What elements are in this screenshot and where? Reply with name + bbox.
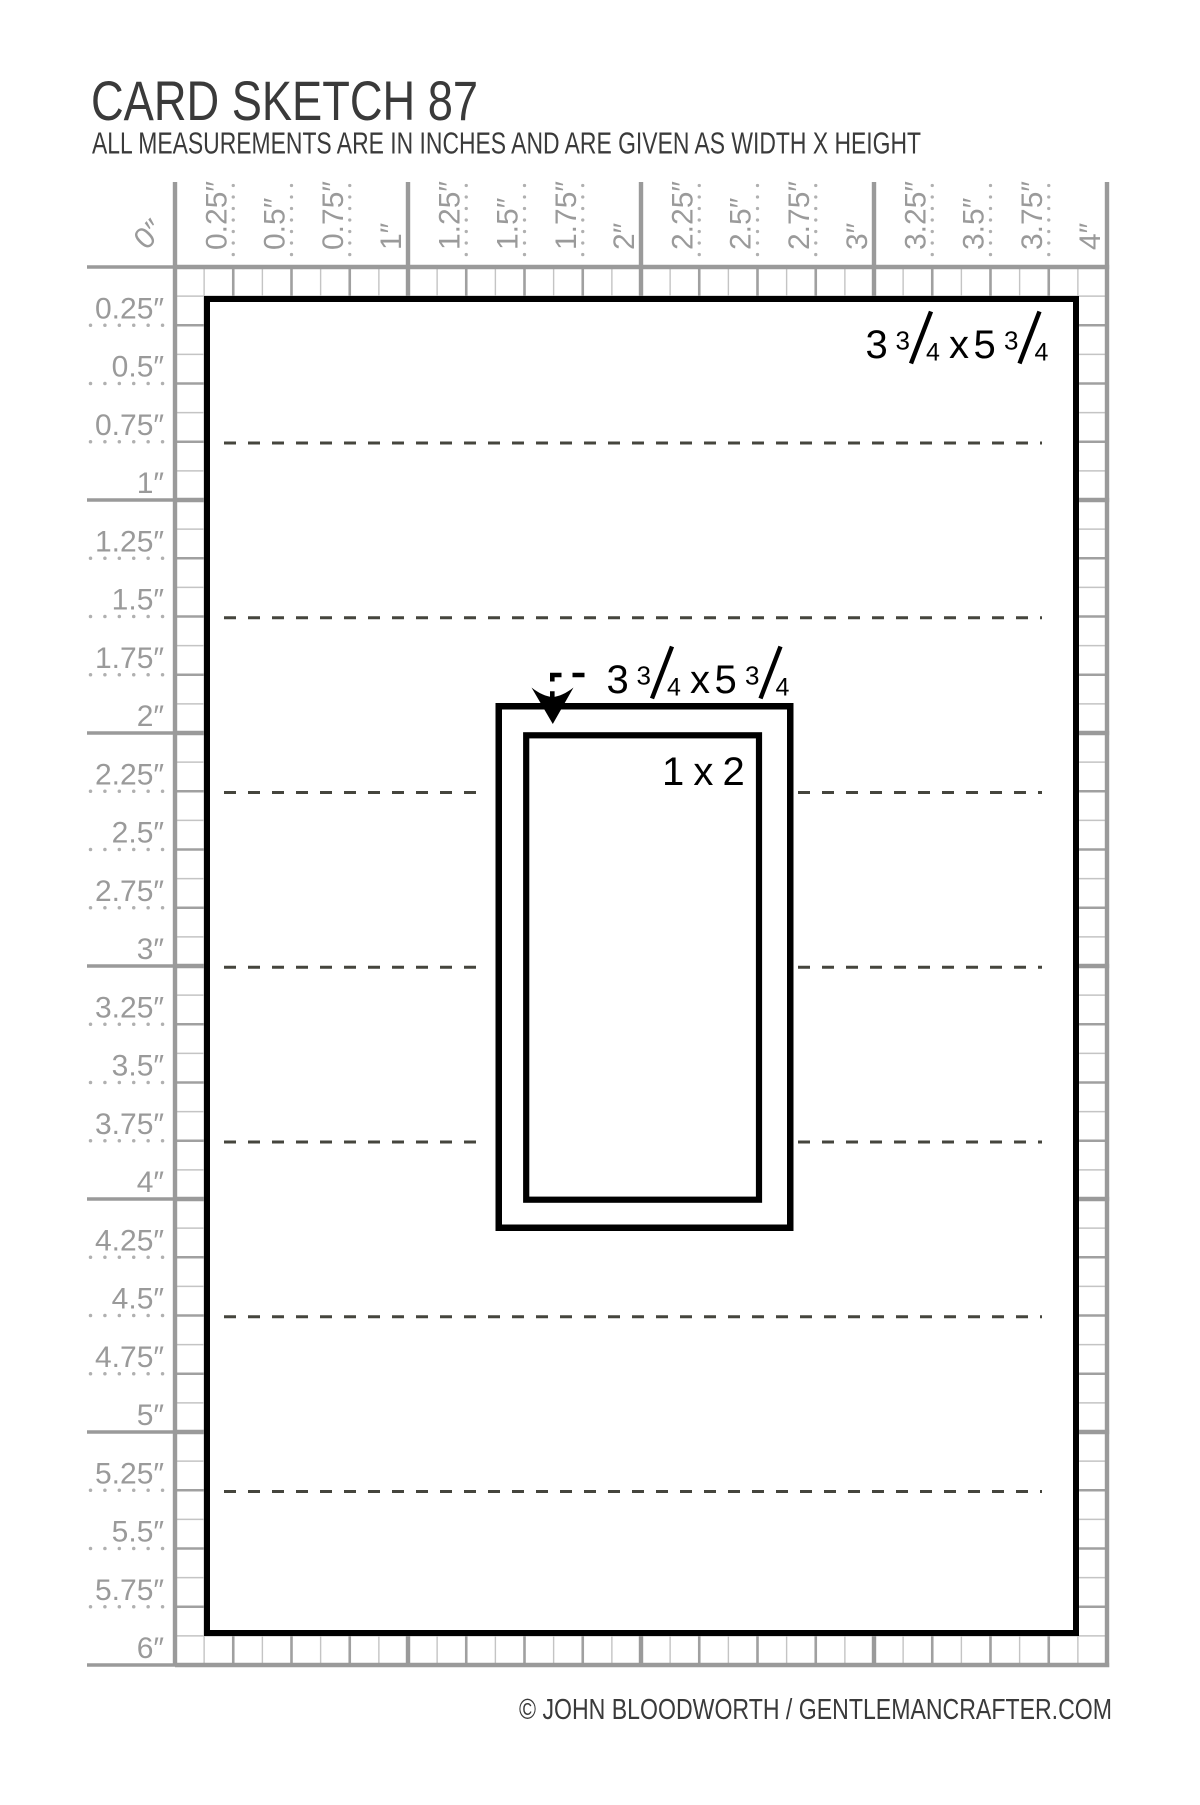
svg-text:3.75″: 3.75″ [1016,181,1049,250]
svg-text:1.5″: 1.5″ [492,197,525,250]
svg-text:3: 3 [607,658,629,702]
svg-text:© JOHN BLOODWORTH / GENTLEMANC: © JOHN BLOODWORTH / GENTLEMANCRAFTER.COM [519,1694,1112,1726]
svg-text:0.75″: 0.75″ [95,409,164,442]
svg-text:2.75″: 2.75″ [783,181,816,250]
svg-text:CARD SKETCH 87: CARD SKETCH 87 [91,69,478,132]
svg-text:4.75″: 4.75″ [95,1341,164,1374]
svg-text:3.25″: 3.25″ [899,181,932,250]
svg-text:5: 5 [715,658,737,702]
svg-text:2.5″: 2.5″ [725,197,758,250]
svg-text:3.5″: 3.5″ [958,197,991,250]
svg-text:0.5″: 0.5″ [259,197,292,250]
svg-text:4.5″: 4.5″ [112,1283,165,1316]
svg-text:0.25″: 0.25″ [95,292,164,325]
svg-text:0.5″: 0.5″ [112,351,165,384]
svg-text:4.25″: 4.25″ [95,1224,164,1257]
svg-text:3: 3 [637,661,651,691]
svg-text:2.5″: 2.5″ [112,817,165,850]
svg-text:3.5″: 3.5″ [112,1050,165,1083]
svg-text:6″: 6″ [137,1632,165,1665]
svg-text:4″: 4″ [1074,222,1107,250]
svg-text:5.25″: 5.25″ [95,1457,164,1490]
svg-text:5.75″: 5.75″ [95,1574,164,1607]
svg-text:5.5″: 5.5″ [112,1516,165,1549]
svg-text:1 x 2: 1 x 2 [662,750,744,794]
svg-text:4: 4 [1035,339,1049,367]
svg-text:2.25″: 2.25″ [666,181,699,250]
svg-text:1.5″: 1.5″ [112,584,165,617]
svg-text:2″: 2″ [137,700,165,733]
svg-text:1″: 1″ [137,467,165,500]
svg-text:3: 3 [1004,326,1018,356]
svg-text:3″: 3″ [841,222,874,250]
svg-text:4: 4 [667,674,681,702]
svg-text:3: 3 [896,326,910,356]
svg-text:1.25″: 1.25″ [433,181,466,250]
svg-text:2″: 2″ [608,222,641,250]
svg-text:3.75″: 3.75″ [95,1108,164,1141]
svg-text:4: 4 [926,339,940,367]
svg-text:4: 4 [776,674,790,702]
svg-text:3.25″: 3.25″ [95,991,164,1024]
svg-text:1″: 1″ [375,222,408,250]
svg-text:ALL MEASUREMENTS ARE IN INCHES: ALL MEASUREMENTS ARE IN INCHES AND ARE G… [92,126,921,161]
svg-text:3: 3 [745,661,759,691]
svg-text:1.75″: 1.75″ [95,642,164,675]
svg-text:5″: 5″ [137,1399,165,1432]
svg-text:4″: 4″ [137,1166,165,1199]
svg-text:0.25″: 0.25″ [200,181,233,250]
svg-text:3″: 3″ [137,933,165,966]
svg-text:x: x [949,323,969,367]
svg-text:x: x [690,658,710,702]
svg-text:0.75″: 0.75″ [317,181,350,250]
svg-text:2.25″: 2.25″ [95,758,164,791]
svg-text:1.25″: 1.25″ [95,525,164,558]
svg-text:5: 5 [974,323,996,367]
svg-text:1.75″: 1.75″ [550,181,583,250]
svg-text:3: 3 [866,323,888,367]
svg-text:2.75″: 2.75″ [95,875,164,908]
